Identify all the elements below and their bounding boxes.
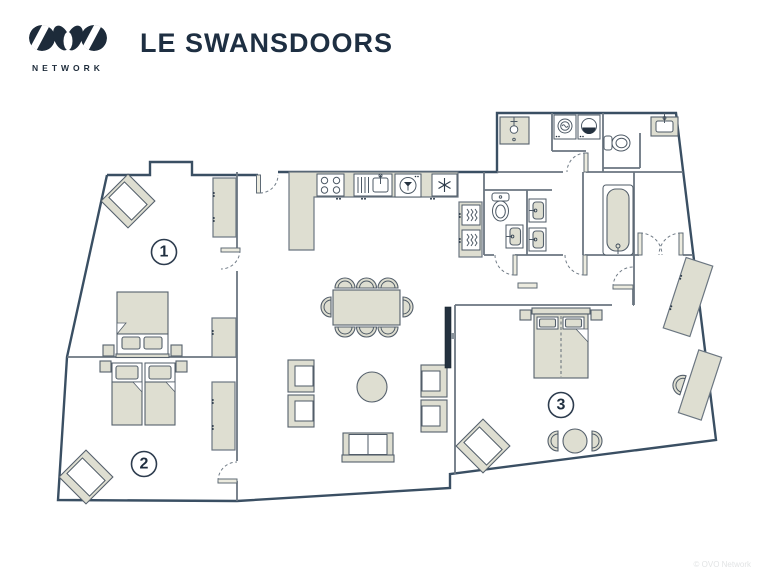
door-entrance	[257, 175, 279, 193]
desk	[678, 350, 721, 420]
dining-chair	[403, 297, 413, 317]
washbasin-icon-4	[529, 228, 546, 251]
floor-plan: 1 2	[0, 0, 767, 575]
dining-table	[333, 290, 400, 325]
shower-icon	[500, 117, 529, 144]
sofa	[342, 433, 394, 462]
nightstand	[103, 345, 114, 356]
toilet-icon-2	[492, 193, 509, 221]
room-3-label: 3	[557, 397, 566, 414]
double-door-hall	[638, 233, 683, 255]
toilet-icon	[604, 135, 630, 151]
chair	[548, 431, 558, 451]
nightstand	[591, 310, 602, 320]
floorplan-page: OVO NETWO	[0, 0, 767, 575]
living-dining-area	[288, 278, 455, 462]
armchair	[288, 395, 314, 427]
nightstand	[176, 361, 187, 372]
hall-shelf	[518, 283, 537, 288]
dining-chair	[321, 297, 331, 317]
dining-chair	[378, 278, 398, 288]
wardrobe	[212, 382, 235, 450]
oven-icon-2	[462, 230, 480, 250]
single-bed	[112, 363, 142, 425]
dining-chair	[378, 327, 398, 337]
dining-chair	[357, 278, 377, 288]
double-bed	[103, 292, 182, 358]
door-bathroom	[565, 255, 587, 275]
room-3-badge: 3	[549, 393, 574, 418]
single-bed	[145, 363, 175, 425]
bathtub-icon	[603, 185, 633, 255]
kitchen-sink-icon	[354, 174, 392, 196]
dining-chair	[335, 327, 355, 337]
armchair	[421, 365, 447, 397]
armchair	[288, 360, 314, 392]
watermark: © OVO Network	[694, 560, 751, 569]
wardrobe	[213, 178, 236, 237]
washing-machine-icon	[554, 115, 576, 139]
armchair	[59, 450, 113, 504]
dishwasher-icon	[395, 174, 421, 197]
utility-room	[500, 113, 678, 151]
door-bedroom-3	[613, 267, 633, 289]
door-laundry	[567, 153, 588, 172]
tumble-dryer-icon	[578, 115, 600, 139]
wardrobe	[212, 318, 236, 357]
bedroom-2: 2	[59, 361, 235, 504]
desk-chair	[670, 373, 686, 395]
armchair	[421, 400, 447, 432]
door-bedroom-1	[221, 248, 240, 269]
room-2-badge: 2	[132, 452, 157, 477]
nightstand	[100, 361, 111, 372]
double-bed	[520, 308, 602, 378]
nightstand	[520, 310, 531, 320]
counter-handles	[336, 198, 461, 243]
washbasin-icon-3	[529, 199, 546, 222]
freezer-icon	[432, 174, 457, 196]
round-table	[563, 429, 587, 453]
room-1-label: 1	[160, 244, 169, 261]
armchair	[456, 419, 510, 473]
kitchen	[289, 172, 482, 257]
room-2-label: 2	[140, 456, 149, 473]
washbasin-icon-2	[506, 225, 523, 248]
dining-chair	[335, 278, 355, 288]
nightstand	[171, 345, 182, 356]
hob-icon	[317, 174, 344, 196]
tv-icon	[445, 307, 455, 368]
chair	[592, 431, 602, 451]
wardrobe-angled	[663, 257, 712, 336]
bedroom-1: 1	[101, 174, 236, 357]
dining-chair	[357, 327, 377, 337]
door-bedroom-2	[218, 462, 237, 483]
bedroom-3: 3	[456, 257, 721, 472]
room-1-badge: 1	[152, 240, 177, 265]
coffee-table	[357, 372, 387, 402]
door-wc	[495, 255, 517, 275]
armchair	[101, 174, 155, 228]
oven-icon	[462, 205, 480, 225]
washbasin-icon	[651, 113, 678, 136]
